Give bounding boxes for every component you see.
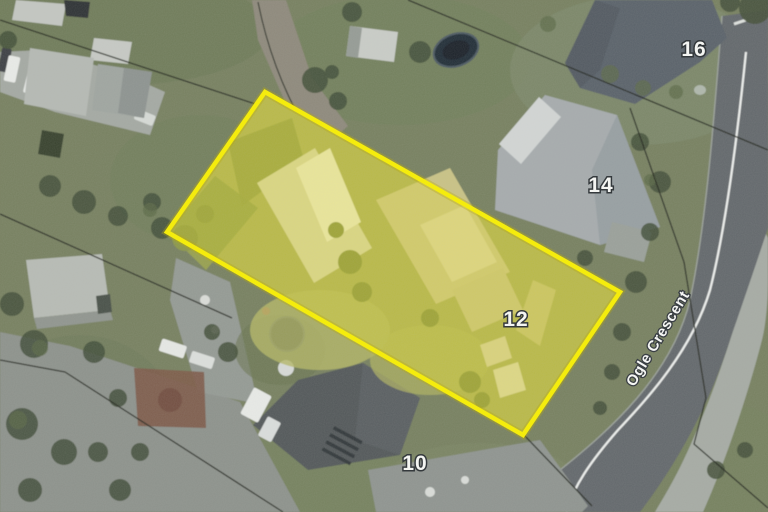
house-number-label-16: 16 <box>681 38 706 61</box>
house-number-label-10: 10 <box>402 452 427 475</box>
house-number-label-12: 12 <box>503 308 528 331</box>
photo-grain-overlay <box>0 0 768 512</box>
house-number-label-14: 14 <box>588 174 613 197</box>
aerial-map-canvas: 16 14 12 10 Ogle Crescent <box>0 0 768 512</box>
aerial-map: 16 14 12 10 Ogle Crescent <box>0 0 768 512</box>
